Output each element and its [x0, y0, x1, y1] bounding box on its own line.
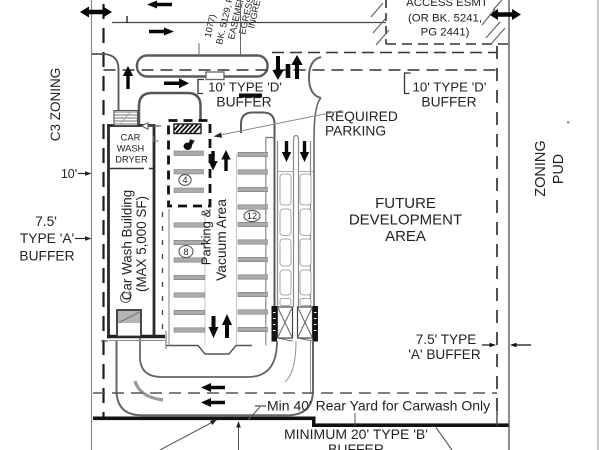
svg-text:10': 10' — [61, 167, 77, 181]
svg-text:8: 8 — [183, 247, 188, 257]
svg-text:PUD: PUD — [551, 154, 567, 184]
svg-text:'A' BUFFER: 'A' BUFFER — [408, 347, 481, 362]
svg-text:TYPE 'A': TYPE 'A' — [20, 231, 74, 246]
svg-text:Car Wash Building: Car Wash Building — [120, 190, 135, 300]
svg-text:AREA: AREA — [385, 228, 426, 245]
svg-text:BUFFER: BUFFER — [421, 95, 476, 110]
svg-text:12: 12 — [247, 211, 257, 221]
svg-text:10' TYPE 'D': 10' TYPE 'D' — [413, 80, 487, 95]
svg-text:ACCESS ESMT: ACCESS ESMT — [406, 0, 488, 9]
svg-text:(MAX 5,000 SF): (MAX 5,000 SF) — [134, 196, 149, 292]
svg-text:7.5': 7.5' — [35, 214, 57, 229]
svg-text:DEVELOPMENT: DEVELOPMENT — [349, 212, 462, 229]
svg-text:(OR BK. 5241,: (OR BK. 5241, — [408, 13, 482, 25]
svg-text:Min 40' Rear Yard for Carwash: Min 40' Rear Yard for Carwash Only — [267, 398, 490, 414]
svg-text:FUTURE: FUTURE — [375, 195, 436, 212]
svg-text:BUFFER: BUFFER — [19, 249, 74, 264]
svg-text:BUFFER: BUFFER — [328, 441, 384, 450]
svg-text:PG 2441): PG 2441) — [421, 27, 470, 39]
svg-text:Vacuum Area: Vacuum Area — [214, 199, 229, 281]
svg-text:ZONING: ZONING — [533, 140, 549, 196]
svg-text:7.5' TYPE: 7.5' TYPE — [416, 332, 477, 347]
svg-text:MINIMUM 20' TYPE 'B': MINIMUM 20' TYPE 'B' — [284, 426, 428, 442]
svg-text:4: 4 — [182, 175, 187, 185]
svg-text:C3 ZONING: C3 ZONING — [48, 68, 63, 142]
svg-text:PARKING: PARKING — [325, 124, 386, 139]
svg-text:10' TYPE 'D': 10' TYPE 'D' — [208, 80, 282, 95]
svg-text:DRYER: DRYER — [115, 155, 148, 165]
svg-text:Parking &: Parking & — [199, 208, 214, 265]
svg-text:BUFFER: BUFFER — [216, 95, 271, 110]
svg-text:CAR: CAR — [121, 133, 141, 143]
svg-text:WASH: WASH — [117, 144, 145, 154]
